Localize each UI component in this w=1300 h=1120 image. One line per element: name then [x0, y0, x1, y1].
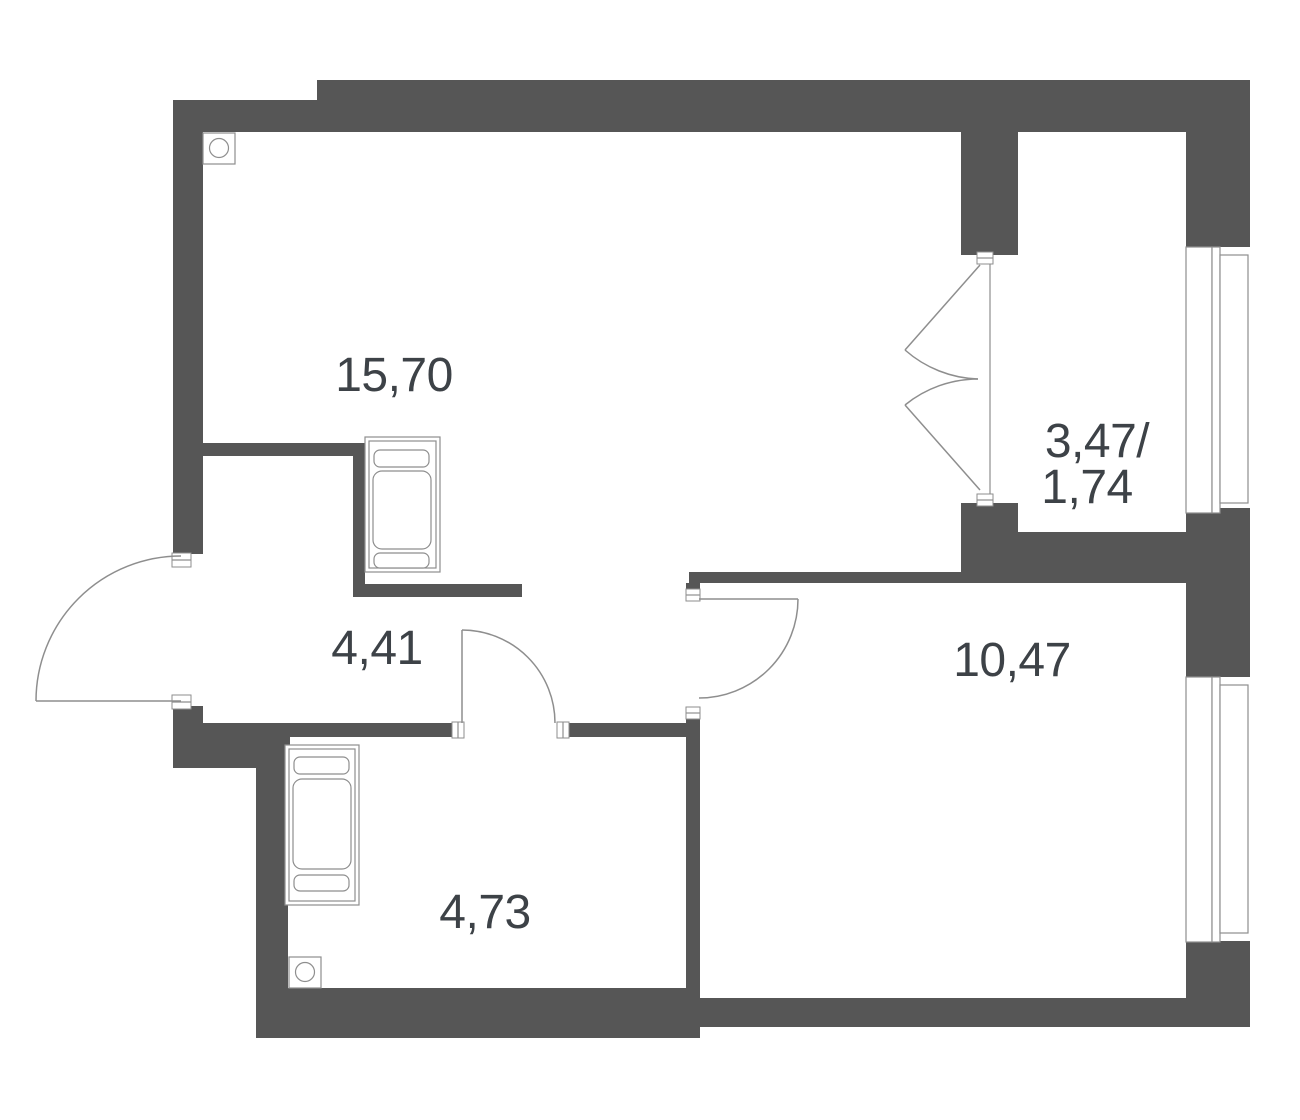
- door-swing-arc: [905, 379, 978, 405]
- door-swing-arc: [905, 350, 978, 379]
- wall-segment: [173, 100, 203, 554]
- room-label-balcony-reduced: 1,74: [1041, 461, 1132, 514]
- bedroom-door: [686, 589, 798, 719]
- window-glazing: [1220, 255, 1248, 503]
- wall-segment: [1186, 508, 1250, 677]
- balcony-window: [1186, 247, 1248, 513]
- room-labels: 15,70 4,41 4,73 10,47 3,47/ 1,74: [331, 349, 1150, 939]
- room-label-living: 15,70: [335, 349, 453, 402]
- door-leaf: [905, 405, 980, 490]
- furniture: [203, 133, 440, 988]
- window-frame: [1212, 247, 1220, 513]
- room-label-bathroom: 4,73: [439, 886, 530, 939]
- window-frame: [1186, 677, 1212, 942]
- wall-segment: [961, 132, 1018, 255]
- wall-segment: [568, 723, 686, 737]
- wall-segment: [202, 443, 359, 456]
- wall-segment: [317, 80, 1250, 132]
- floor-plan: 15,70 4,41 4,73 10,47 3,47/ 1,74: [0, 0, 1300, 1120]
- door-swing-arc: [36, 556, 181, 701]
- door-swing-arc: [462, 630, 555, 723]
- bathroom-door: [452, 630, 569, 738]
- bed-icon: [365, 437, 440, 572]
- wall-segment: [686, 718, 700, 998]
- wall-segment: [353, 443, 365, 597]
- wall-segment: [353, 584, 522, 597]
- wall-segment: [689, 572, 962, 583]
- door-leaf: [905, 265, 980, 350]
- balcony-french-door: [905, 252, 993, 506]
- wall-segment: [961, 503, 1018, 583]
- door-swing-arc: [699, 599, 798, 698]
- floor-plan-page: 15,70 4,41 4,73 10,47 3,47/ 1,74: [0, 0, 1300, 1120]
- window-frame: [1212, 677, 1220, 942]
- window-glazing: [1220, 685, 1248, 933]
- wall-segment: [1186, 132, 1250, 247]
- room-label-bedroom: 10,47: [953, 634, 1071, 687]
- wall-segment: [1186, 941, 1250, 1027]
- window-frame: [1186, 247, 1212, 513]
- wall-segment: [190, 723, 453, 737]
- entrance-door: [36, 553, 191, 709]
- wall-segment: [1017, 532, 1186, 583]
- vent-icon: [203, 133, 235, 164]
- wall-segment: [700, 998, 1250, 1027]
- bedroom-window: [1186, 677, 1248, 942]
- bed-icon: [285, 745, 359, 905]
- washing-machine-icon: [289, 957, 321, 988]
- wall-segment: [256, 988, 700, 1038]
- room-label-hallway: 4,41: [331, 622, 422, 675]
